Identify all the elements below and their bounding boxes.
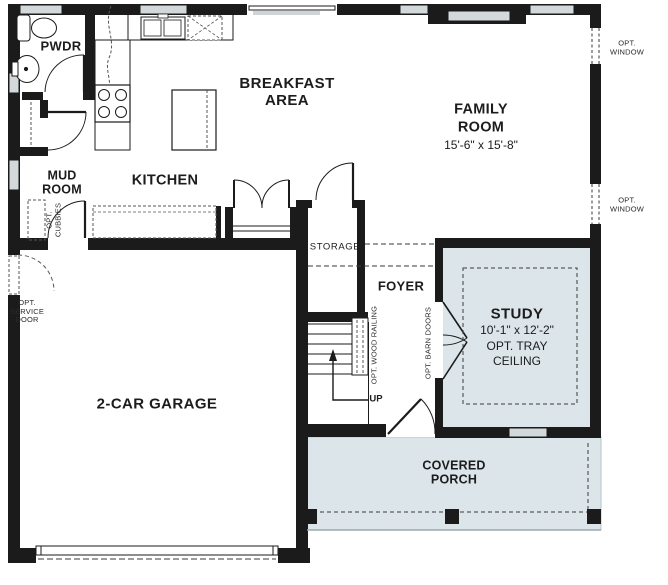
stair-treads	[308, 324, 352, 374]
kitchen-faucet	[158, 14, 168, 18]
powder-sink-backsplash	[12, 62, 18, 76]
stair-direction-arrow	[329, 349, 337, 361]
room-label-study: STUDY	[491, 305, 544, 322]
opening-front-door	[386, 424, 435, 437]
pantry-shelves	[225, 226, 298, 231]
toilet-bowl	[32, 18, 57, 38]
wall-closet-stub	[40, 100, 48, 118]
wall-foyer-front	[296, 424, 386, 437]
window-study-bottom	[509, 428, 547, 437]
window-family-right	[530, 5, 574, 14]
porch-post-left	[303, 509, 317, 524]
study-opt-tray-line2: CEILING	[493, 355, 541, 369]
opening-mud-door	[48, 238, 88, 250]
garage-door-panel	[38, 546, 276, 555]
pantry-door-right-swing	[262, 180, 289, 208]
study-opt-tray-line1: OPT. TRAY	[487, 340, 548, 354]
powder-door-swing	[45, 55, 84, 92]
room-dims-family: 15'-6" x 15'-8"	[444, 139, 518, 153]
wall-closet-south	[8, 147, 48, 156]
window-powder-top	[20, 5, 62, 14]
room-label-powder: PWDR	[41, 40, 82, 55]
room-label-garage: 2-CAR GARAGE	[97, 395, 218, 412]
opening-service-door	[8, 255, 20, 295]
room-label-kitchen: KITCHEN	[132, 173, 199, 190]
room-label-porch: COVERED PORCH	[422, 459, 485, 488]
annotation-opt-cubbies: OPT. CUBBIES	[45, 203, 62, 237]
annotation-stairs-up: UP	[369, 395, 382, 406]
powder-sink-drain	[24, 67, 27, 70]
opening-storage-door	[312, 200, 352, 208]
wall-pantry-left	[225, 207, 233, 240]
wall-powder-right	[85, 4, 95, 100]
room-label-family-line1: FAMILY	[454, 102, 508, 119]
pantry-door-left-swing	[234, 180, 262, 208]
opening-barn-doors	[435, 302, 443, 378]
stairs	[308, 318, 369, 424]
stair-railing	[352, 318, 368, 375]
opt-cubbies-dashed	[28, 200, 45, 240]
wall-study-top	[435, 238, 601, 248]
room-label-mud-room: MUD ROOM	[42, 169, 82, 198]
room-label-storage: STORAGE	[310, 243, 360, 254]
coat-closet	[31, 102, 86, 150]
closet-door-swing	[48, 112, 86, 150]
room-label-breakfast: BREAKFAST AREA	[239, 75, 334, 110]
annotation-opt-service-door: OPT. SERVICE DOOR	[10, 299, 44, 325]
wall-garage-right	[296, 200, 308, 562]
opt-cabinets-south	[93, 206, 216, 238]
annotation-opt-window-upper: OPT. WINDOW	[610, 39, 644, 56]
window-family-left	[400, 5, 428, 14]
annotation-opt-window-lower: OPT. WINDOW	[610, 196, 644, 213]
service-door-swing	[18, 255, 54, 291]
room-label-family-line2: ROOM	[458, 120, 504, 137]
optional-room-fills	[307, 248, 601, 530]
kitchen-island	[172, 90, 216, 150]
toilet-tank	[17, 15, 30, 41]
room-dims-study: 10'-1" x 12'-2"	[480, 324, 554, 338]
floor-plan: PWDR MUD ROOM KITCHEN BREAKFAST AREA FAM…	[0, 0, 668, 585]
room-label-foyer: FOYER	[378, 280, 424, 295]
opening-powder-door	[43, 92, 83, 100]
fireplace-firebox	[448, 11, 510, 21]
wall-counter-end	[216, 206, 221, 238]
storage-door-swing	[316, 163, 353, 200]
porch-post-right	[587, 509, 601, 524]
annotation-opt-barn-doors: OPT. BARN DOORS	[425, 307, 434, 379]
kitchen-fixtures	[93, 6, 298, 238]
window-kitchen-sink	[140, 5, 187, 14]
annotation-opt-wood-railing: OPT. WOOD RAILING	[371, 306, 380, 384]
window-mud-side	[9, 160, 19, 190]
porch-post-center	[445, 509, 459, 524]
wall-storage-right	[357, 200, 365, 322]
